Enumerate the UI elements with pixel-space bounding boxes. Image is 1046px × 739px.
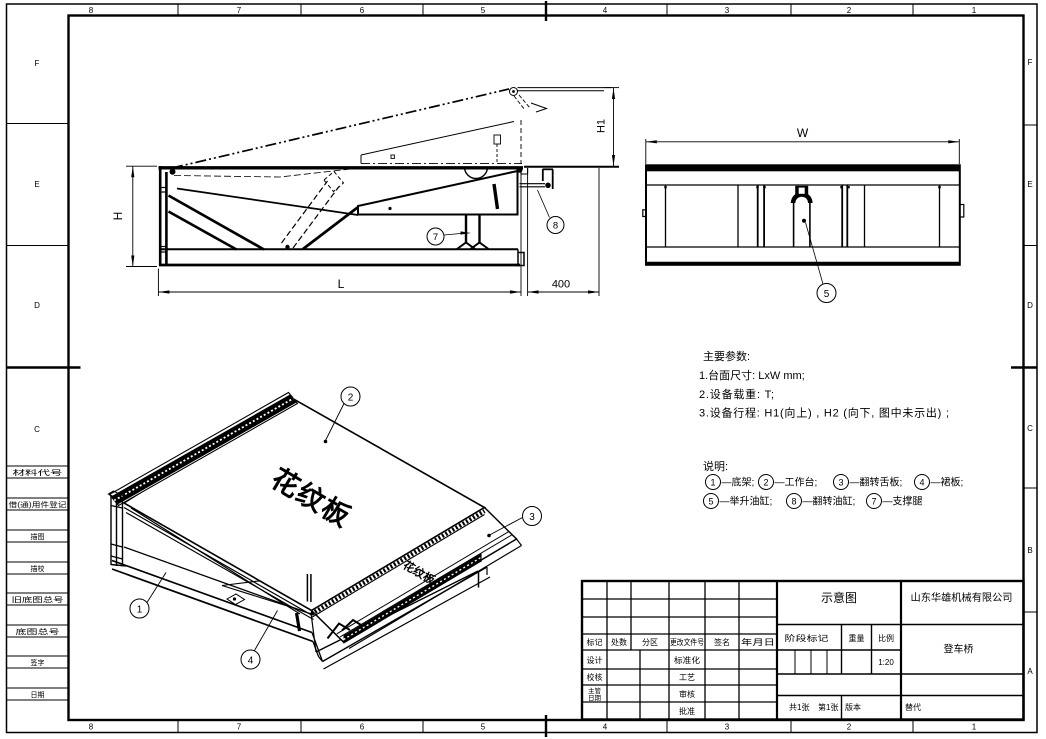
svg-text:标准化: 标准化 xyxy=(674,655,700,665)
svg-text:4: 4 xyxy=(603,723,608,732)
svg-text:5: 5 xyxy=(481,6,486,15)
svg-text:分区: 分区 xyxy=(642,638,658,647)
svg-text:处数: 处数 xyxy=(611,637,627,647)
svg-text:—裙板;: —裙板; xyxy=(931,476,964,489)
svg-text:F: F xyxy=(35,59,40,68)
svg-text:材料代号: 材料代号 xyxy=(13,468,63,477)
svg-text:8: 8 xyxy=(791,497,796,507)
svg-text:7: 7 xyxy=(871,497,876,507)
svg-text:5: 5 xyxy=(824,289,830,300)
svg-text:校核: 校核 xyxy=(587,672,603,682)
svg-text:签字: 签字 xyxy=(31,658,45,667)
svg-text:1: 1 xyxy=(972,723,977,732)
svg-text:5: 5 xyxy=(481,723,486,732)
svg-text:—工作台;: —工作台; xyxy=(775,476,818,489)
svg-text:工艺: 工艺 xyxy=(679,673,695,682)
svg-text:D: D xyxy=(34,301,40,310)
svg-text:D: D xyxy=(1027,301,1033,310)
svg-text:A: A xyxy=(1027,667,1033,676)
svg-text:6: 6 xyxy=(360,723,365,732)
svg-text:日期: 日期 xyxy=(31,691,45,699)
svg-text:7: 7 xyxy=(237,723,242,732)
svg-text:7: 7 xyxy=(237,6,242,15)
svg-text:L: L xyxy=(338,277,345,291)
svg-text:2: 2 xyxy=(847,6,852,15)
svg-text:描图: 描图 xyxy=(31,532,45,541)
svg-text:—翻转舌板;: —翻转舌板; xyxy=(850,476,903,489)
svg-text:8: 8 xyxy=(553,221,558,232)
svg-text:设计: 设计 xyxy=(587,655,603,665)
svg-text:1: 1 xyxy=(137,605,143,616)
svg-text:2: 2 xyxy=(847,723,852,732)
svg-text:C: C xyxy=(1027,424,1033,433)
svg-text:共1张: 共1张 xyxy=(789,703,809,712)
svg-text:标记: 标记 xyxy=(587,637,603,647)
svg-text:B: B xyxy=(1027,546,1032,555)
svg-text:第1张: 第1张 xyxy=(818,702,838,712)
svg-text:签名: 签名 xyxy=(714,637,730,647)
svg-text:W: W xyxy=(797,126,809,140)
svg-text:H1: H1 xyxy=(596,119,608,133)
svg-text:4: 4 xyxy=(603,6,608,15)
svg-text:—翻转油缸;: —翻转油缸; xyxy=(803,495,856,508)
svg-text:批准: 批准 xyxy=(679,706,695,716)
svg-text:年月日: 年月日 xyxy=(741,637,775,647)
svg-text:示意图: 示意图 xyxy=(821,590,857,605)
svg-text:版本: 版本 xyxy=(845,702,861,712)
svg-text:主管: 主管 xyxy=(588,686,602,695)
svg-text:描校: 描校 xyxy=(31,564,45,573)
svg-text:1: 1 xyxy=(710,478,715,488)
svg-text:2: 2 xyxy=(348,393,354,404)
svg-text:2.设备载重: T;: 2.设备载重: T; xyxy=(699,387,774,401)
svg-text:3.设备行程: H1(向上) , H2 (向下, 图中未示出: 3.设备行程: H1(向上) , H2 (向下, 图中未示出) ; xyxy=(699,406,949,420)
svg-text:审核: 审核 xyxy=(679,689,695,699)
svg-text:H: H xyxy=(111,212,125,221)
svg-text:8: 8 xyxy=(89,6,94,15)
svg-text:更改文件号: 更改文件号 xyxy=(670,637,704,647)
svg-text:4: 4 xyxy=(248,656,254,667)
svg-text:5: 5 xyxy=(708,497,713,507)
svg-text:2: 2 xyxy=(763,478,768,488)
svg-text:说明:: 说明: xyxy=(703,459,728,473)
svg-text:3: 3 xyxy=(529,512,535,523)
svg-text:E: E xyxy=(34,180,39,189)
svg-text:日期: 日期 xyxy=(588,694,602,702)
svg-text:阶段标记: 阶段标记 xyxy=(785,633,829,643)
svg-text:8: 8 xyxy=(89,723,94,732)
svg-text:1:20: 1:20 xyxy=(878,658,894,667)
svg-text:底图总号: 底图总号 xyxy=(16,627,60,636)
svg-text:6: 6 xyxy=(360,6,365,15)
svg-text:—支撑腿: —支撑腿 xyxy=(883,495,923,508)
svg-text:3: 3 xyxy=(725,6,730,15)
svg-text:7: 7 xyxy=(433,232,438,243)
svg-text:山东华雄机械有限公司: 山东华雄机械有限公司 xyxy=(911,591,1013,604)
svg-text:替代: 替代 xyxy=(905,702,921,712)
svg-text:1: 1 xyxy=(972,6,977,15)
svg-text:3: 3 xyxy=(838,478,843,488)
svg-text:C: C xyxy=(34,425,40,434)
svg-text:旧底图总号: 旧底图总号 xyxy=(12,595,64,604)
svg-text:F: F xyxy=(1028,58,1033,67)
svg-text:重量: 重量 xyxy=(849,633,865,643)
svg-text:4: 4 xyxy=(919,478,924,488)
svg-text:E: E xyxy=(1027,180,1032,189)
svg-text:400: 400 xyxy=(552,279,570,291)
svg-text:主要参数:: 主要参数: xyxy=(703,349,750,363)
svg-text:借(通)用件登记: 借(通)用件登记 xyxy=(9,500,67,509)
svg-text:1.台面尺寸: LxW mm;: 1.台面尺寸: LxW mm; xyxy=(699,368,805,382)
svg-text:—底架;: —底架; xyxy=(722,476,755,489)
svg-text:—举升油缸;: —举升油缸; xyxy=(720,495,773,508)
svg-text:比例: 比例 xyxy=(878,633,894,643)
svg-text:3: 3 xyxy=(725,723,730,732)
svg-text:登车桥: 登车桥 xyxy=(944,643,974,656)
